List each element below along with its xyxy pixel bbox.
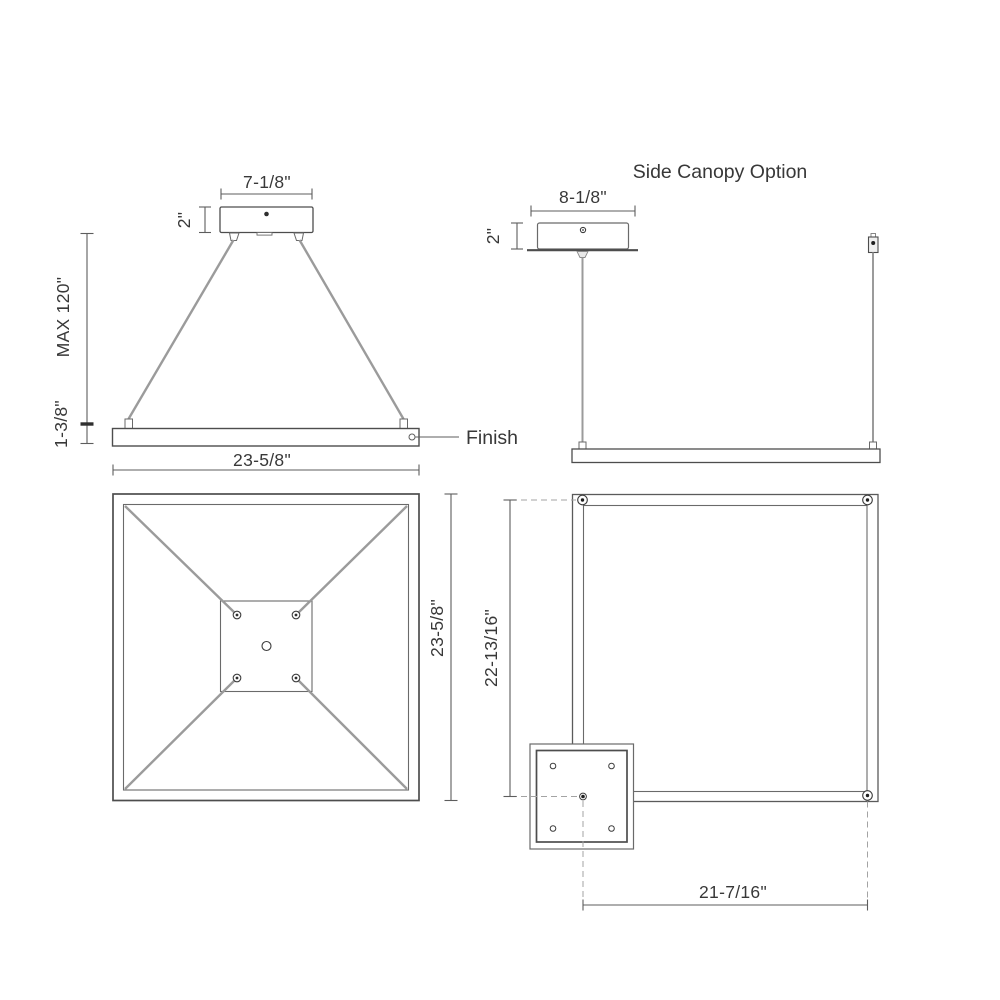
cable-anchor-bottom-right (292, 674, 300, 682)
corner-anchor-bottom-right (863, 791, 873, 801)
dimension-label-fixture-depth: 23-5/8" (427, 599, 447, 657)
side-canopy-screw-dot (582, 229, 584, 231)
plan-view-side-canopy: 22-13/16" 21-7/16" (481, 495, 878, 911)
dimension-label-canopy-height: 2" (174, 212, 194, 229)
dimension-label-offset-vertical: 22-13/16" (481, 609, 501, 687)
bar-cable-connector-left (579, 442, 586, 449)
side-canopy-elevation-view: Side Canopy Option 8-1/8" 2" (483, 161, 880, 463)
pendant-light-dimension-drawing: 7-1/8" 2" Finish MAX 120" 1-3/8" 2 (0, 0, 1000, 1000)
cable-gripper-canopy (577, 252, 588, 258)
side-canopy-option-title: Side Canopy Option (633, 161, 808, 183)
cable-anchor-top-right (292, 611, 300, 619)
canopy-screw-hole (550, 826, 556, 832)
cable-gripper-left (230, 233, 240, 241)
cable-anchor-top-left (233, 611, 241, 619)
canopy-center-dot (581, 795, 585, 799)
canopy-screw-hole (609, 763, 615, 769)
fixture-bar (113, 429, 420, 447)
dimension-label-offset-horizontal: 21-7/16" (699, 882, 767, 902)
anchor-dot (295, 614, 298, 617)
ceiling-gripper-dot (871, 241, 875, 245)
suspension-cable-left (129, 240, 234, 419)
canopy-body (220, 207, 313, 233)
bar-cable-connector-right (870, 442, 877, 449)
dimension-label-bar-width: 23-5/8" (233, 450, 291, 470)
cable-anchor-bottom-left (233, 674, 241, 682)
dimension-label-canopy-width: 7-1/8" (243, 172, 291, 192)
canopy-screw-hole (550, 763, 556, 769)
cable-gripper-right (294, 233, 304, 241)
suspension-cable-right (300, 240, 404, 419)
canopy-center-notch (257, 233, 272, 236)
dimension-label-side-canopy-height: 2" (483, 228, 503, 245)
plan-view-center-canopy: 23-5/8" (113, 494, 458, 801)
dimension-label-max-drop: MAX 120" (53, 277, 73, 358)
finish-label: Finish (466, 427, 518, 449)
center-canopy-hole (262, 642, 271, 651)
anchor-dot (236, 614, 239, 617)
fixture-bar-side-option (572, 449, 880, 463)
dimension-label-bar-height: 1-3/8" (51, 400, 71, 448)
front-elevation-view: 7-1/8" 2" Finish MAX 120" 1-3/8" 2 (51, 172, 518, 476)
anchor-dot (236, 677, 239, 680)
finish-callout-circle (409, 434, 415, 440)
dimension-label-side-canopy-width: 8-1/8" (559, 187, 607, 207)
canopy-screw-hole (609, 826, 615, 832)
anchor-dot (866, 794, 869, 797)
bar-cable-connector-left (125, 419, 133, 429)
anchor-dot (581, 498, 584, 501)
anchor-dot (866, 498, 869, 501)
bar-cable-connector-right (400, 419, 408, 429)
corner-anchor-top-left (578, 495, 588, 505)
anchor-dot (295, 677, 298, 680)
canopy-screw-dot (264, 212, 269, 217)
corner-anchor-top-right (863, 495, 873, 505)
technical-drawing-page: 7-1/8" 2" Finish MAX 120" 1-3/8" 2 (0, 0, 1000, 1000)
